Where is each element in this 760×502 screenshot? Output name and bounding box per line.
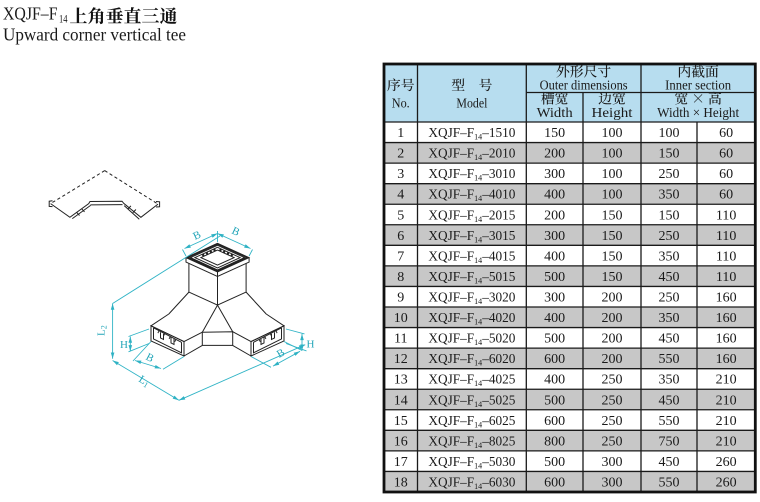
svg-text:550: 550 — [659, 476, 680, 491]
svg-text:XQJF–F14–5030: XQJF–F14–5030 — [428, 455, 515, 471]
svg-text:XQJF–F14–6020: XQJF–F14–6020 — [428, 352, 515, 368]
svg-text:100: 100 — [602, 188, 623, 203]
svg-text:100: 100 — [659, 126, 680, 141]
svg-text:450: 450 — [659, 270, 680, 285]
svg-text:450: 450 — [659, 455, 680, 470]
svg-text:150: 150 — [544, 126, 565, 141]
svg-text:7: 7 — [397, 249, 404, 264]
svg-text:600: 600 — [544, 476, 565, 491]
svg-text:400: 400 — [544, 249, 565, 264]
svg-text:110: 110 — [716, 208, 736, 223]
svg-text:17: 17 — [394, 455, 408, 470]
svg-text:250: 250 — [602, 373, 623, 388]
svg-text:Upward corner vertical tee: Upward corner vertical tee — [3, 25, 186, 45]
svg-text:110: 110 — [716, 270, 736, 285]
svg-text:10: 10 — [394, 311, 408, 326]
svg-text:H: H — [307, 339, 315, 351]
svg-text:5: 5 — [397, 208, 404, 223]
svg-text:4: 4 — [397, 188, 404, 203]
svg-text:Inner section: Inner section — [665, 79, 731, 94]
svg-text:150: 150 — [659, 208, 680, 223]
svg-text:XQJF–F14–4025: XQJF–F14–4025 — [428, 373, 515, 389]
svg-text:Model: Model — [456, 97, 487, 112]
svg-text:210: 210 — [716, 393, 737, 408]
svg-text:250: 250 — [659, 291, 680, 306]
svg-text:Height: Height — [592, 106, 633, 121]
svg-text:160: 160 — [716, 352, 737, 367]
svg-text:XQJF–F14–2015: XQJF–F14–2015 — [428, 208, 515, 224]
svg-text:800: 800 — [544, 434, 565, 449]
svg-text:XQJF–F14–3010: XQJF–F14–3010 — [428, 167, 515, 183]
svg-text:750: 750 — [659, 434, 680, 449]
svg-text:250: 250 — [602, 434, 623, 449]
svg-text:2: 2 — [397, 147, 404, 162]
svg-text:350: 350 — [659, 311, 680, 326]
svg-text:Outer dimensions: Outer dimensions — [540, 79, 628, 94]
svg-text:500: 500 — [544, 270, 565, 285]
svg-text:500: 500 — [544, 332, 565, 347]
svg-text:450: 450 — [659, 332, 680, 347]
svg-text:XQJF–F14–5015: XQJF–F14–5015 — [428, 270, 515, 286]
svg-text:200: 200 — [602, 291, 623, 306]
svg-text:550: 550 — [659, 414, 680, 429]
svg-text:60: 60 — [719, 167, 733, 182]
svg-text:250: 250 — [602, 393, 623, 408]
svg-text:200: 200 — [602, 311, 623, 326]
svg-text:XQJF–F14–4010: XQJF–F14–4010 — [428, 188, 515, 204]
svg-text:250: 250 — [659, 229, 680, 244]
svg-text:12: 12 — [394, 352, 408, 367]
svg-text:500: 500 — [544, 393, 565, 408]
svg-text:160: 160 — [716, 291, 737, 306]
svg-text:100: 100 — [602, 126, 623, 141]
svg-text:XQJF–F14–5025: XQJF–F14–5025 — [428, 393, 515, 409]
svg-text:H: H — [120, 339, 128, 351]
svg-text:150: 150 — [602, 208, 623, 223]
svg-text:XQJF–F14–5020: XQJF–F14–5020 — [428, 332, 515, 348]
svg-text:18: 18 — [394, 476, 408, 491]
svg-text:XQJF–F14–4015: XQJF–F14–4015 — [428, 249, 515, 265]
svg-text:150: 150 — [602, 249, 623, 264]
svg-text:XQJF–F14–6025: XQJF–F14–6025 — [428, 414, 515, 430]
svg-text:200: 200 — [602, 332, 623, 347]
svg-text:XQJF–F14–6030: XQJF–F14–6030 — [428, 476, 515, 492]
svg-text:350: 350 — [659, 249, 680, 264]
svg-text:250: 250 — [602, 414, 623, 429]
svg-text:11: 11 — [394, 332, 407, 347]
svg-text:XQJF–F14–1510: XQJF–F14–1510 — [428, 126, 515, 142]
svg-text:550: 550 — [659, 352, 680, 367]
svg-text:350: 350 — [659, 188, 680, 203]
svg-text:200: 200 — [602, 352, 623, 367]
svg-text:XQJF–F: XQJF–F — [3, 4, 58, 24]
svg-text:210: 210 — [716, 373, 737, 388]
svg-text:XQJF–F14–8025: XQJF–F14–8025 — [428, 434, 515, 450]
svg-text:XQJF–F14–4020: XQJF–F14–4020 — [428, 311, 515, 327]
svg-text:450: 450 — [659, 393, 680, 408]
svg-text:110: 110 — [716, 229, 736, 244]
svg-text:100: 100 — [602, 147, 623, 162]
svg-text:250: 250 — [659, 167, 680, 182]
svg-text:XQJF–F14–2010: XQJF–F14–2010 — [428, 147, 515, 163]
svg-text:400: 400 — [544, 311, 565, 326]
svg-text:300: 300 — [544, 291, 565, 306]
svg-text:260: 260 — [716, 455, 737, 470]
svg-text:100: 100 — [602, 167, 623, 182]
svg-text:260: 260 — [716, 476, 737, 491]
svg-text:600: 600 — [544, 414, 565, 429]
svg-text:300: 300 — [602, 476, 623, 491]
svg-text:210: 210 — [716, 434, 737, 449]
svg-text:6: 6 — [397, 229, 404, 244]
svg-text:Width: Width — [537, 106, 573, 121]
svg-text:400: 400 — [544, 373, 565, 388]
svg-text:150: 150 — [602, 229, 623, 244]
svg-text:8: 8 — [397, 270, 404, 285]
svg-text:No.: No. — [392, 97, 410, 112]
svg-text:200: 200 — [544, 147, 565, 162]
svg-text:3: 3 — [397, 167, 404, 182]
svg-text:500: 500 — [544, 455, 565, 470]
svg-text:60: 60 — [719, 147, 733, 162]
svg-text:16: 16 — [394, 434, 408, 449]
svg-text:XQJF–F14–3020: XQJF–F14–3020 — [428, 291, 515, 307]
svg-text:200: 200 — [544, 208, 565, 223]
svg-text:350: 350 — [659, 373, 680, 388]
svg-text:600: 600 — [544, 352, 565, 367]
svg-text:9: 9 — [397, 291, 404, 306]
svg-text:300: 300 — [544, 229, 565, 244]
svg-text:150: 150 — [602, 270, 623, 285]
svg-text:1: 1 — [397, 126, 404, 141]
svg-text:14: 14 — [394, 393, 408, 408]
svg-text:Width × Height: Width × Height — [657, 106, 739, 121]
svg-text:XQJF–F14–3015: XQJF–F14–3015 — [428, 229, 515, 245]
svg-text:210: 210 — [716, 414, 737, 429]
svg-text:150: 150 — [659, 147, 680, 162]
svg-text:160: 160 — [716, 311, 737, 326]
svg-text:60: 60 — [719, 188, 733, 203]
svg-text:400: 400 — [544, 188, 565, 203]
svg-text:15: 15 — [394, 414, 408, 429]
svg-text:300: 300 — [602, 455, 623, 470]
svg-text:110: 110 — [716, 249, 736, 264]
svg-text:13: 13 — [394, 373, 408, 388]
svg-text:300: 300 — [544, 167, 565, 182]
svg-text:60: 60 — [719, 126, 733, 141]
svg-text:160: 160 — [716, 332, 737, 347]
